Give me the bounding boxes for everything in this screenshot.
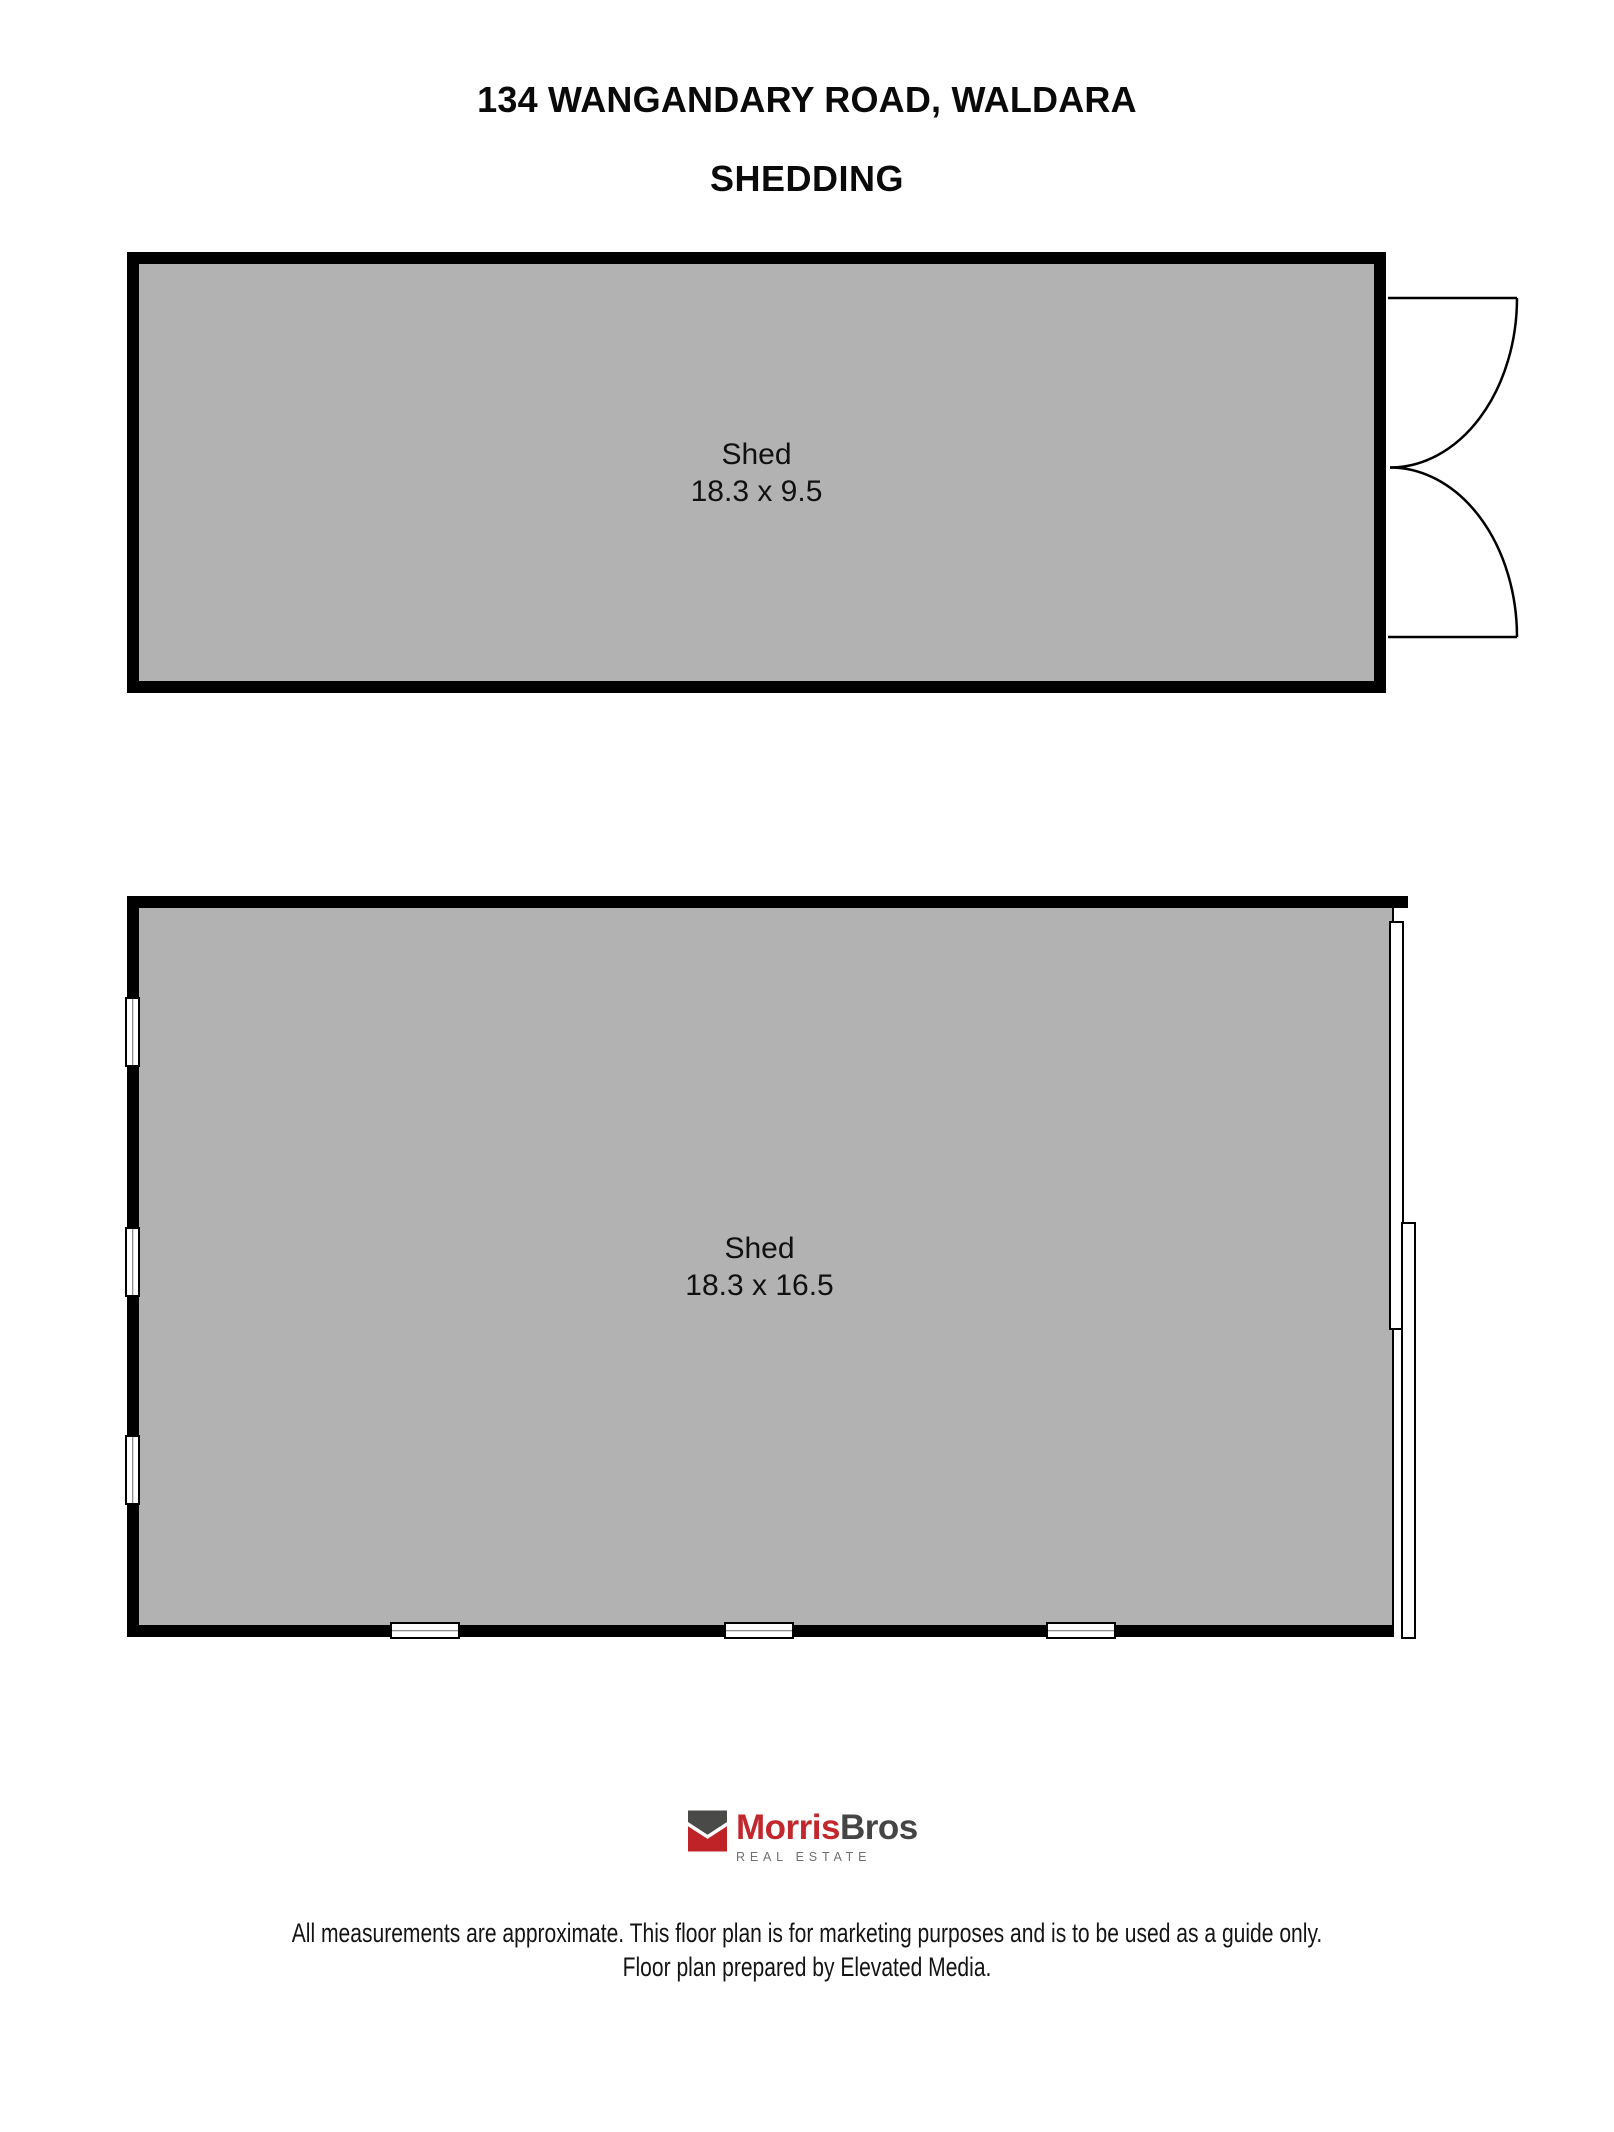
shed-top-name: Shed: [691, 436, 823, 473]
window-icon: [125, 1435, 140, 1505]
disclaimer: All measurements are approximate. This f…: [178, 1916, 1437, 1984]
shed-bottom-wall-top: [127, 896, 1408, 908]
page-title: 134 WANGANDARY ROAD, WALDARA: [0, 82, 1614, 118]
page-subtitle: SHEDDING: [0, 161, 1614, 197]
logo-tagline: REAL ESTATE: [736, 1850, 918, 1864]
disclaimer-line-1: All measurements are approximate. This f…: [178, 1916, 1437, 1950]
floor-plan-page: 134 WANGANDARY ROAD, WALDARA SHEDDING Sh…: [0, 0, 1614, 2132]
window-icon: [125, 997, 140, 1067]
logo-word-secondary: Bros: [840, 1808, 918, 1847]
envelope-roof-icon: [688, 1810, 727, 1852]
shed-top-dimensions: 18.3 x 9.5: [691, 473, 823, 510]
window-icon: [1046, 1622, 1116, 1639]
shed-bottom-room: Shed 18.3 x 16.5: [127, 896, 1394, 1637]
shed-bottom-label: Shed 18.3 x 16.5: [685, 1230, 833, 1304]
shed-bottom-dimensions: 18.3 x 16.5: [685, 1267, 833, 1304]
window-icon: [724, 1622, 794, 1639]
sliding-door-panel-icon: [1401, 1222, 1416, 1639]
logo-wordmark: MorrisBros: [736, 1810, 918, 1845]
logo-word-primary: Morris: [736, 1808, 840, 1847]
double-door-icon: [1380, 290, 1530, 650]
shed-top-room: Shed 18.3 x 9.5: [127, 252, 1386, 693]
window-icon: [125, 1227, 140, 1297]
agency-logo: MorrisBros REAL ESTATE: [688, 1810, 918, 1864]
disclaimer-line-2: Floor plan prepared by Elevated Media.: [178, 1950, 1437, 1984]
window-icon: [390, 1622, 460, 1639]
shed-bottom-name: Shed: [685, 1230, 833, 1267]
shed-top-label: Shed 18.3 x 9.5: [691, 436, 823, 510]
